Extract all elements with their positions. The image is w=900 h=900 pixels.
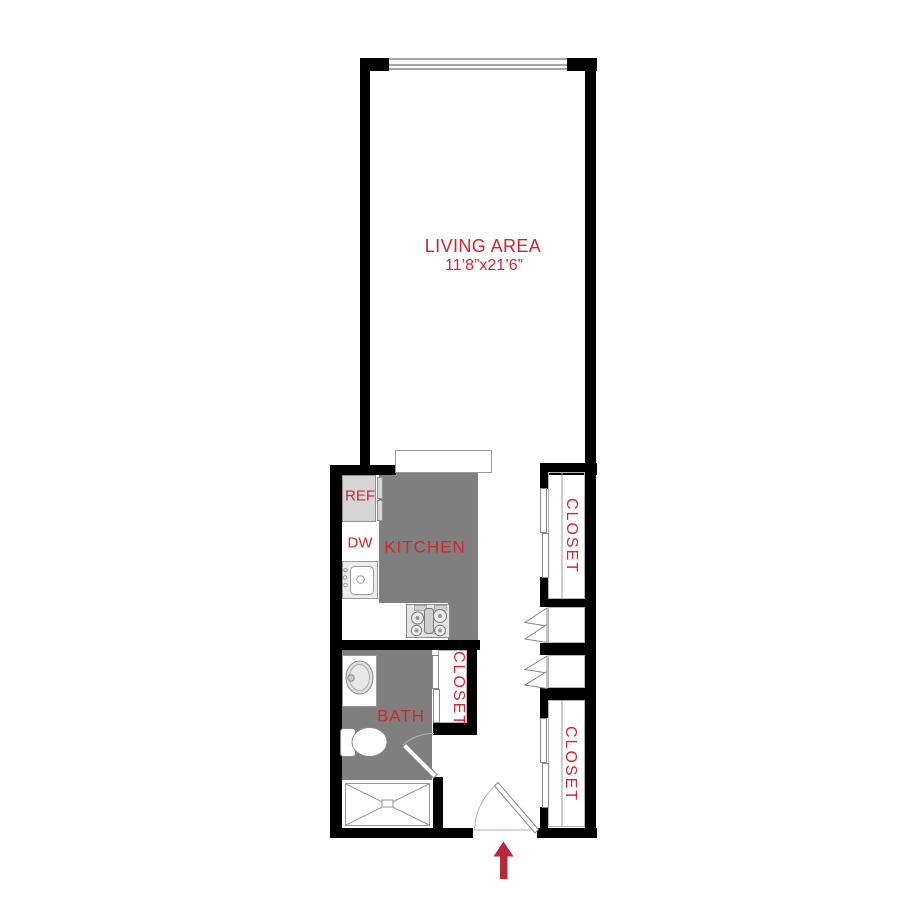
dishwasher-label: DW xyxy=(348,536,373,551)
kitchen-label: KITCHEN xyxy=(384,539,466,556)
sliding-door-panels xyxy=(433,489,549,808)
toilet-icon xyxy=(341,728,388,757)
bath-door-icon xyxy=(403,733,438,778)
living-area-label: LIVING AREA xyxy=(425,237,541,255)
bifold-door-icons xyxy=(525,608,547,689)
bath-label: BATH xyxy=(377,708,425,725)
shower-icon xyxy=(346,784,430,826)
closet-upper-right-label: CLOSET xyxy=(563,498,579,574)
refrigerator-label: REF xyxy=(345,489,375,504)
closet-lower-right-label: CLOSET xyxy=(562,726,578,802)
fixtures-layer xyxy=(0,0,900,900)
stove-icon xyxy=(407,605,450,638)
entry-door-icon xyxy=(473,783,539,834)
closet-hall-label: CLOSET xyxy=(450,651,466,727)
bath-sink-icon xyxy=(343,656,377,707)
kitchen-sink-icon xyxy=(343,562,378,599)
living-area-dimensions: 11’8”x21’6” xyxy=(445,258,523,274)
entry-arrow-icon xyxy=(494,842,514,880)
floor-plan: LIVING AREA 11’8”x21’6” KITCHEN BATH REF… xyxy=(0,0,900,900)
